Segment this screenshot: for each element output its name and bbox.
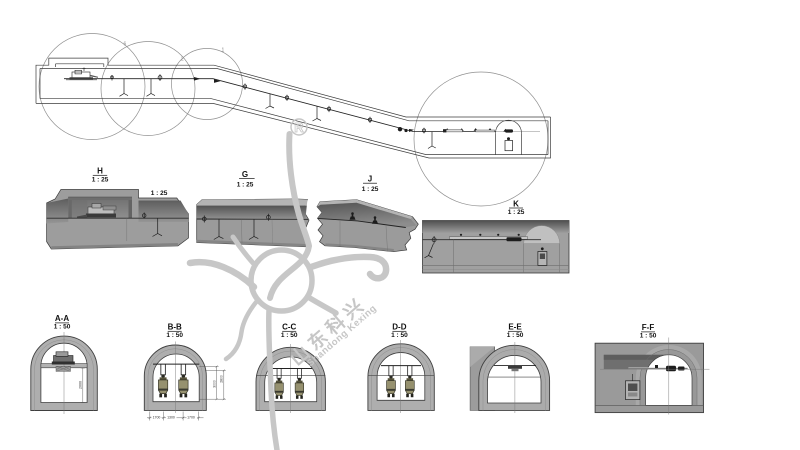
svg-text:2000: 2000	[78, 381, 82, 389]
svg-text:1 : 50: 1 : 50	[281, 332, 298, 339]
svg-text:C-C: C-C	[282, 323, 296, 332]
svg-text:1: 1	[222, 48, 225, 54]
svg-text:1 : 25: 1 : 25	[151, 190, 168, 197]
svg-text:1300: 1300	[167, 416, 175, 420]
svg-text:2: 2	[181, 57, 184, 63]
svg-text:E-E: E-E	[508, 323, 522, 332]
svg-text:K: K	[513, 199, 519, 208]
svg-text:1 : 50: 1 : 50	[507, 332, 524, 339]
svg-text:F-F: F-F	[642, 323, 655, 332]
svg-text:D-D: D-D	[392, 323, 406, 332]
svg-text:R: R	[294, 120, 304, 135]
svg-text:1 : 25: 1 : 25	[237, 181, 254, 188]
svg-text:1 : 50: 1 : 50	[54, 323, 71, 330]
svg-text:3000: 3000	[212, 380, 216, 388]
svg-text:1 : 50: 1 : 50	[640, 332, 657, 339]
svg-text:1 : 50: 1 : 50	[391, 332, 408, 339]
svg-text:2800: 2800	[220, 375, 224, 383]
svg-text:1700: 1700	[153, 416, 161, 420]
svg-text:1700: 1700	[187, 416, 195, 420]
svg-text:A-A: A-A	[55, 314, 69, 323]
svg-text:1 : 50: 1 : 50	[166, 332, 183, 339]
svg-text:6: 6	[124, 42, 127, 48]
svg-text:G: G	[242, 170, 248, 179]
svg-text:B-B: B-B	[168, 323, 182, 332]
svg-text:1 : 25: 1 : 25	[362, 186, 379, 193]
svg-text:1 : 25: 1 : 25	[508, 209, 525, 216]
svg-text:H: H	[97, 167, 103, 176]
svg-text:J: J	[368, 175, 372, 184]
svg-text:1 : 25: 1 : 25	[92, 177, 109, 184]
